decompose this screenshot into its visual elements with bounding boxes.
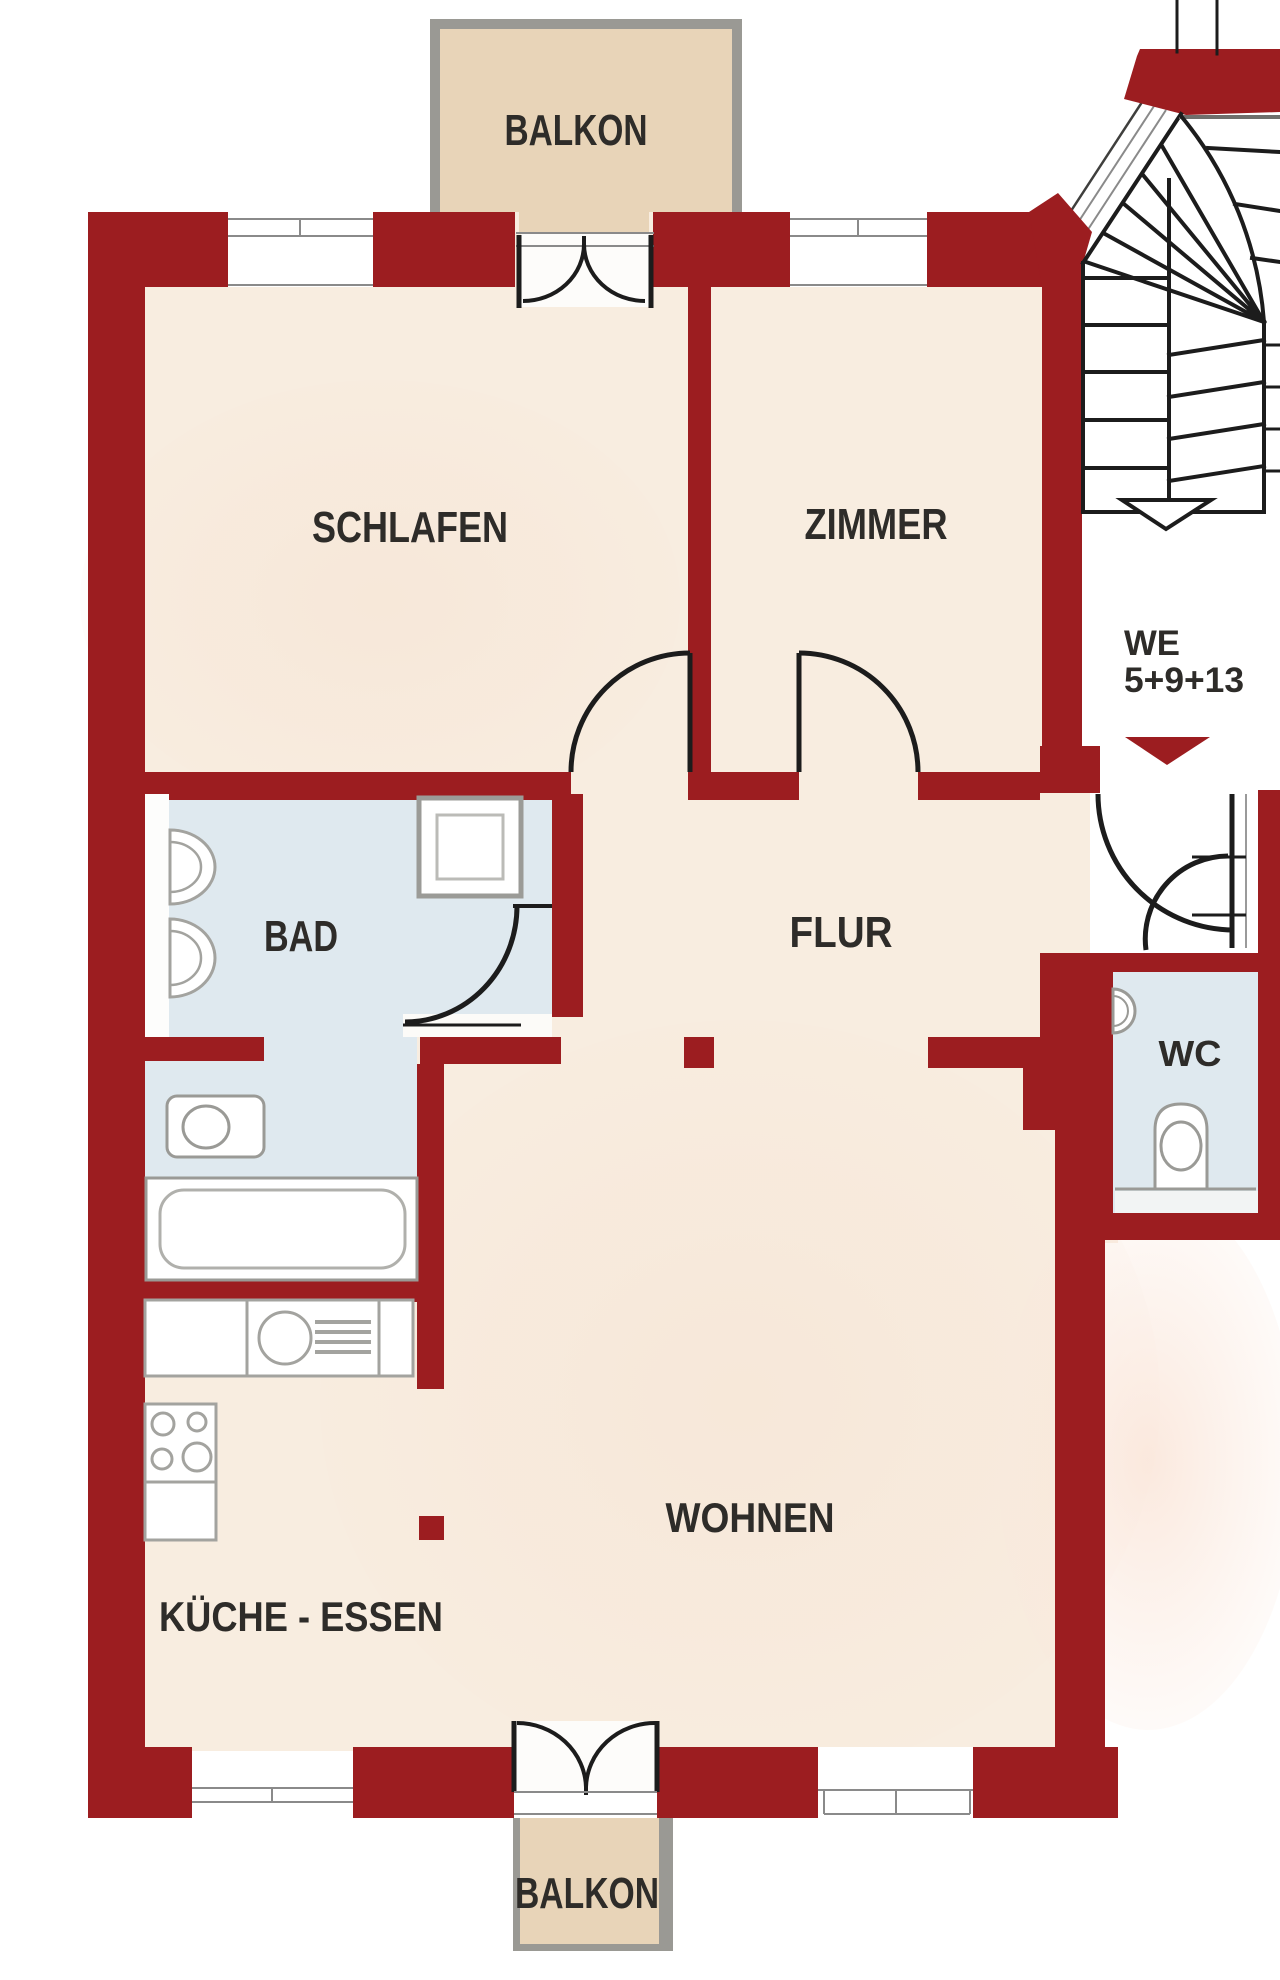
svg-text:BALKON: BALKON bbox=[515, 1869, 659, 1918]
svg-text:FLUR: FLUR bbox=[790, 908, 893, 957]
svg-text:WOHNEN: WOHNEN bbox=[666, 1494, 835, 1541]
svg-text:BAD: BAD bbox=[264, 912, 338, 961]
svg-text:WE: WE bbox=[1124, 624, 1180, 663]
svg-text:BALKON: BALKON bbox=[505, 106, 648, 155]
svg-text:5+9+13: 5+9+13 bbox=[1124, 661, 1244, 700]
svg-text:SCHLAFEN: SCHLAFEN bbox=[312, 503, 508, 552]
svg-text:ZIMMER: ZIMMER bbox=[805, 500, 948, 549]
svg-text:KÜCHE - ESSEN: KÜCHE - ESSEN bbox=[159, 1593, 443, 1640]
svg-text:WC: WC bbox=[1159, 1033, 1222, 1074]
